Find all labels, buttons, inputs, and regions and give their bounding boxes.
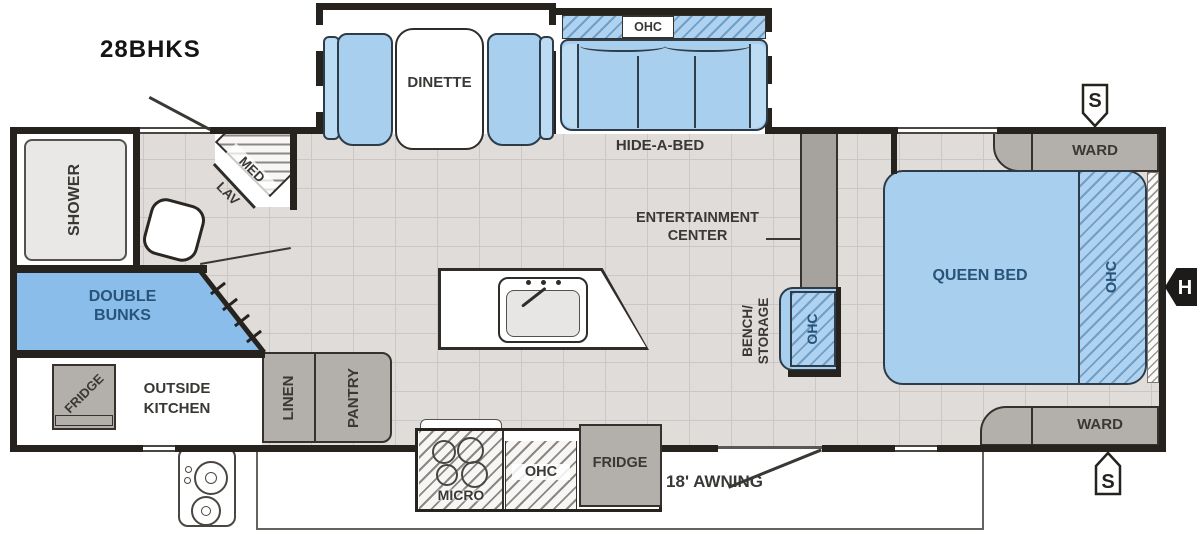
dinette-bench-right-back [539, 36, 554, 140]
title-leader-line [149, 96, 211, 131]
entertainment-line1: ENTERTAINMENT [630, 209, 765, 227]
awning-line-bottom [256, 528, 984, 530]
sink-basin [506, 290, 580, 337]
wall-bench-bottom-stub [788, 370, 836, 377]
speaker-top-letter: S [1088, 90, 1101, 112]
wall-top-b [210, 127, 316, 134]
linen-pantry-divider [314, 353, 316, 442]
entertainment-center [800, 130, 838, 290]
range-burner1 [432, 440, 456, 464]
range-burner4 [461, 461, 488, 488]
wall-bottom-d [822, 445, 895, 452]
sofa-arm-right [749, 44, 766, 128]
double-bunks-line2: BUNKS [55, 306, 190, 325]
sofa-ohc-label: OHC [634, 20, 662, 34]
wall-bench-right-stub [836, 287, 841, 377]
sofa-ohc-label-box: OHC [622, 16, 674, 38]
wall-vanity-stub [290, 130, 297, 210]
hitch-letter: H [1178, 277, 1192, 299]
bench-line2: STORAGE [756, 298, 772, 365]
speaker-marker-bottom: S [1093, 450, 1123, 496]
entertainment-line2: CENTER [630, 227, 765, 245]
ward-top-label: WARD [1040, 142, 1150, 159]
wall-bedroom-stub [891, 127, 897, 174]
wall-top-c [772, 127, 898, 134]
ward-bottom-corner [980, 406, 1033, 446]
outside-kitchen-label: OUTSIDE KITCHEN [127, 379, 227, 419]
outdoor-burner1-hub [205, 472, 217, 484]
dinette-bench-right [487, 33, 543, 146]
sink-knob2 [541, 280, 546, 285]
sink-knob1 [526, 280, 531, 285]
wall-bottom-a [10, 445, 143, 452]
wall-bottom-b [175, 445, 418, 452]
hitch-marker: H [1163, 266, 1199, 308]
micro-label: MICRO [420, 487, 502, 503]
wall-bottom-c [662, 445, 718, 452]
pantry-label: PANTRY [338, 343, 368, 453]
outdoor-burner2-hub [201, 506, 211, 516]
floorplan-28bhks: 28BHKS 18' AWNING DINETTE OHC HIDE-A-BED… [0, 0, 1200, 545]
bench-line1: BENCH/ [740, 298, 756, 365]
kitchen-ohc-label: OHC [512, 464, 570, 480]
bedroom-wall-cabinet-strip [1147, 172, 1159, 383]
range-burner2 [457, 437, 484, 464]
dinette-label: DINETTE [397, 74, 482, 91]
sink-knob3 [556, 280, 561, 285]
bed-ohc-label: OHC [1097, 251, 1127, 303]
window-bottom-left [143, 445, 175, 452]
speaker-marker-top: S [1080, 83, 1110, 129]
dinette-slide-window-left1 [316, 25, 323, 51]
speaker-bottom-letter: S [1101, 471, 1114, 493]
double-bunks-label: DOUBLE BUNKS [55, 287, 190, 325]
outside-kitchen-line2: KITCHEN [127, 399, 227, 419]
outside-kitchen-line1: OUTSIDE [127, 379, 227, 399]
kitchen-fridge-label: FRIDGE [580, 455, 660, 471]
wall-shower-right [133, 130, 140, 270]
awning-label: 18' AWNING [652, 472, 777, 492]
hide-a-bed-sofa [560, 39, 768, 131]
sofa-cushion-divider2 [694, 56, 696, 128]
hide-a-bed-label: HIDE-A-BED [595, 137, 725, 154]
queen-bed-label: QUEEN BED [905, 267, 1055, 285]
awning-line-right [982, 449, 984, 530]
dinette-bench-left [337, 33, 393, 146]
double-bunks-line1: DOUBLE [55, 287, 190, 306]
bench-storage-label: BENCH/ STORAGE [736, 276, 776, 386]
sofa-back-curve-left [580, 39, 666, 52]
window-top-bath [140, 127, 210, 134]
wall-bottom-e [937, 445, 1166, 452]
entry-door [718, 446, 822, 449]
bench-ohc-label: OHC [797, 304, 827, 354]
entertainment-leader [766, 238, 800, 240]
dinette-slide-window-left2 [316, 86, 323, 112]
range-burner3 [436, 464, 458, 486]
page-title: 28BHKS [100, 36, 220, 64]
entertainment-label: ENTERTAINMENT CENTER [630, 209, 765, 245]
outdoor-stove-knob2 [184, 477, 191, 484]
wall-top-a [10, 127, 140, 134]
awning-line-left [256, 450, 258, 530]
window-bottom-right [895, 445, 937, 452]
outdoor-stove-knob1 [185, 466, 192, 473]
sofa-cushion-divider1 [637, 56, 639, 128]
window-top-bedroom [898, 127, 997, 134]
sofa-back-curve-right [664, 39, 750, 52]
wall-below-bunks [10, 350, 265, 358]
sofa-arm-left [562, 44, 579, 128]
ward-bottom-label: WARD [1045, 416, 1155, 433]
shower-label: SHOWER [60, 140, 90, 260]
wall-below-shower [10, 265, 207, 273]
linen-label: LINEN [273, 343, 303, 453]
wall-left [10, 127, 17, 452]
